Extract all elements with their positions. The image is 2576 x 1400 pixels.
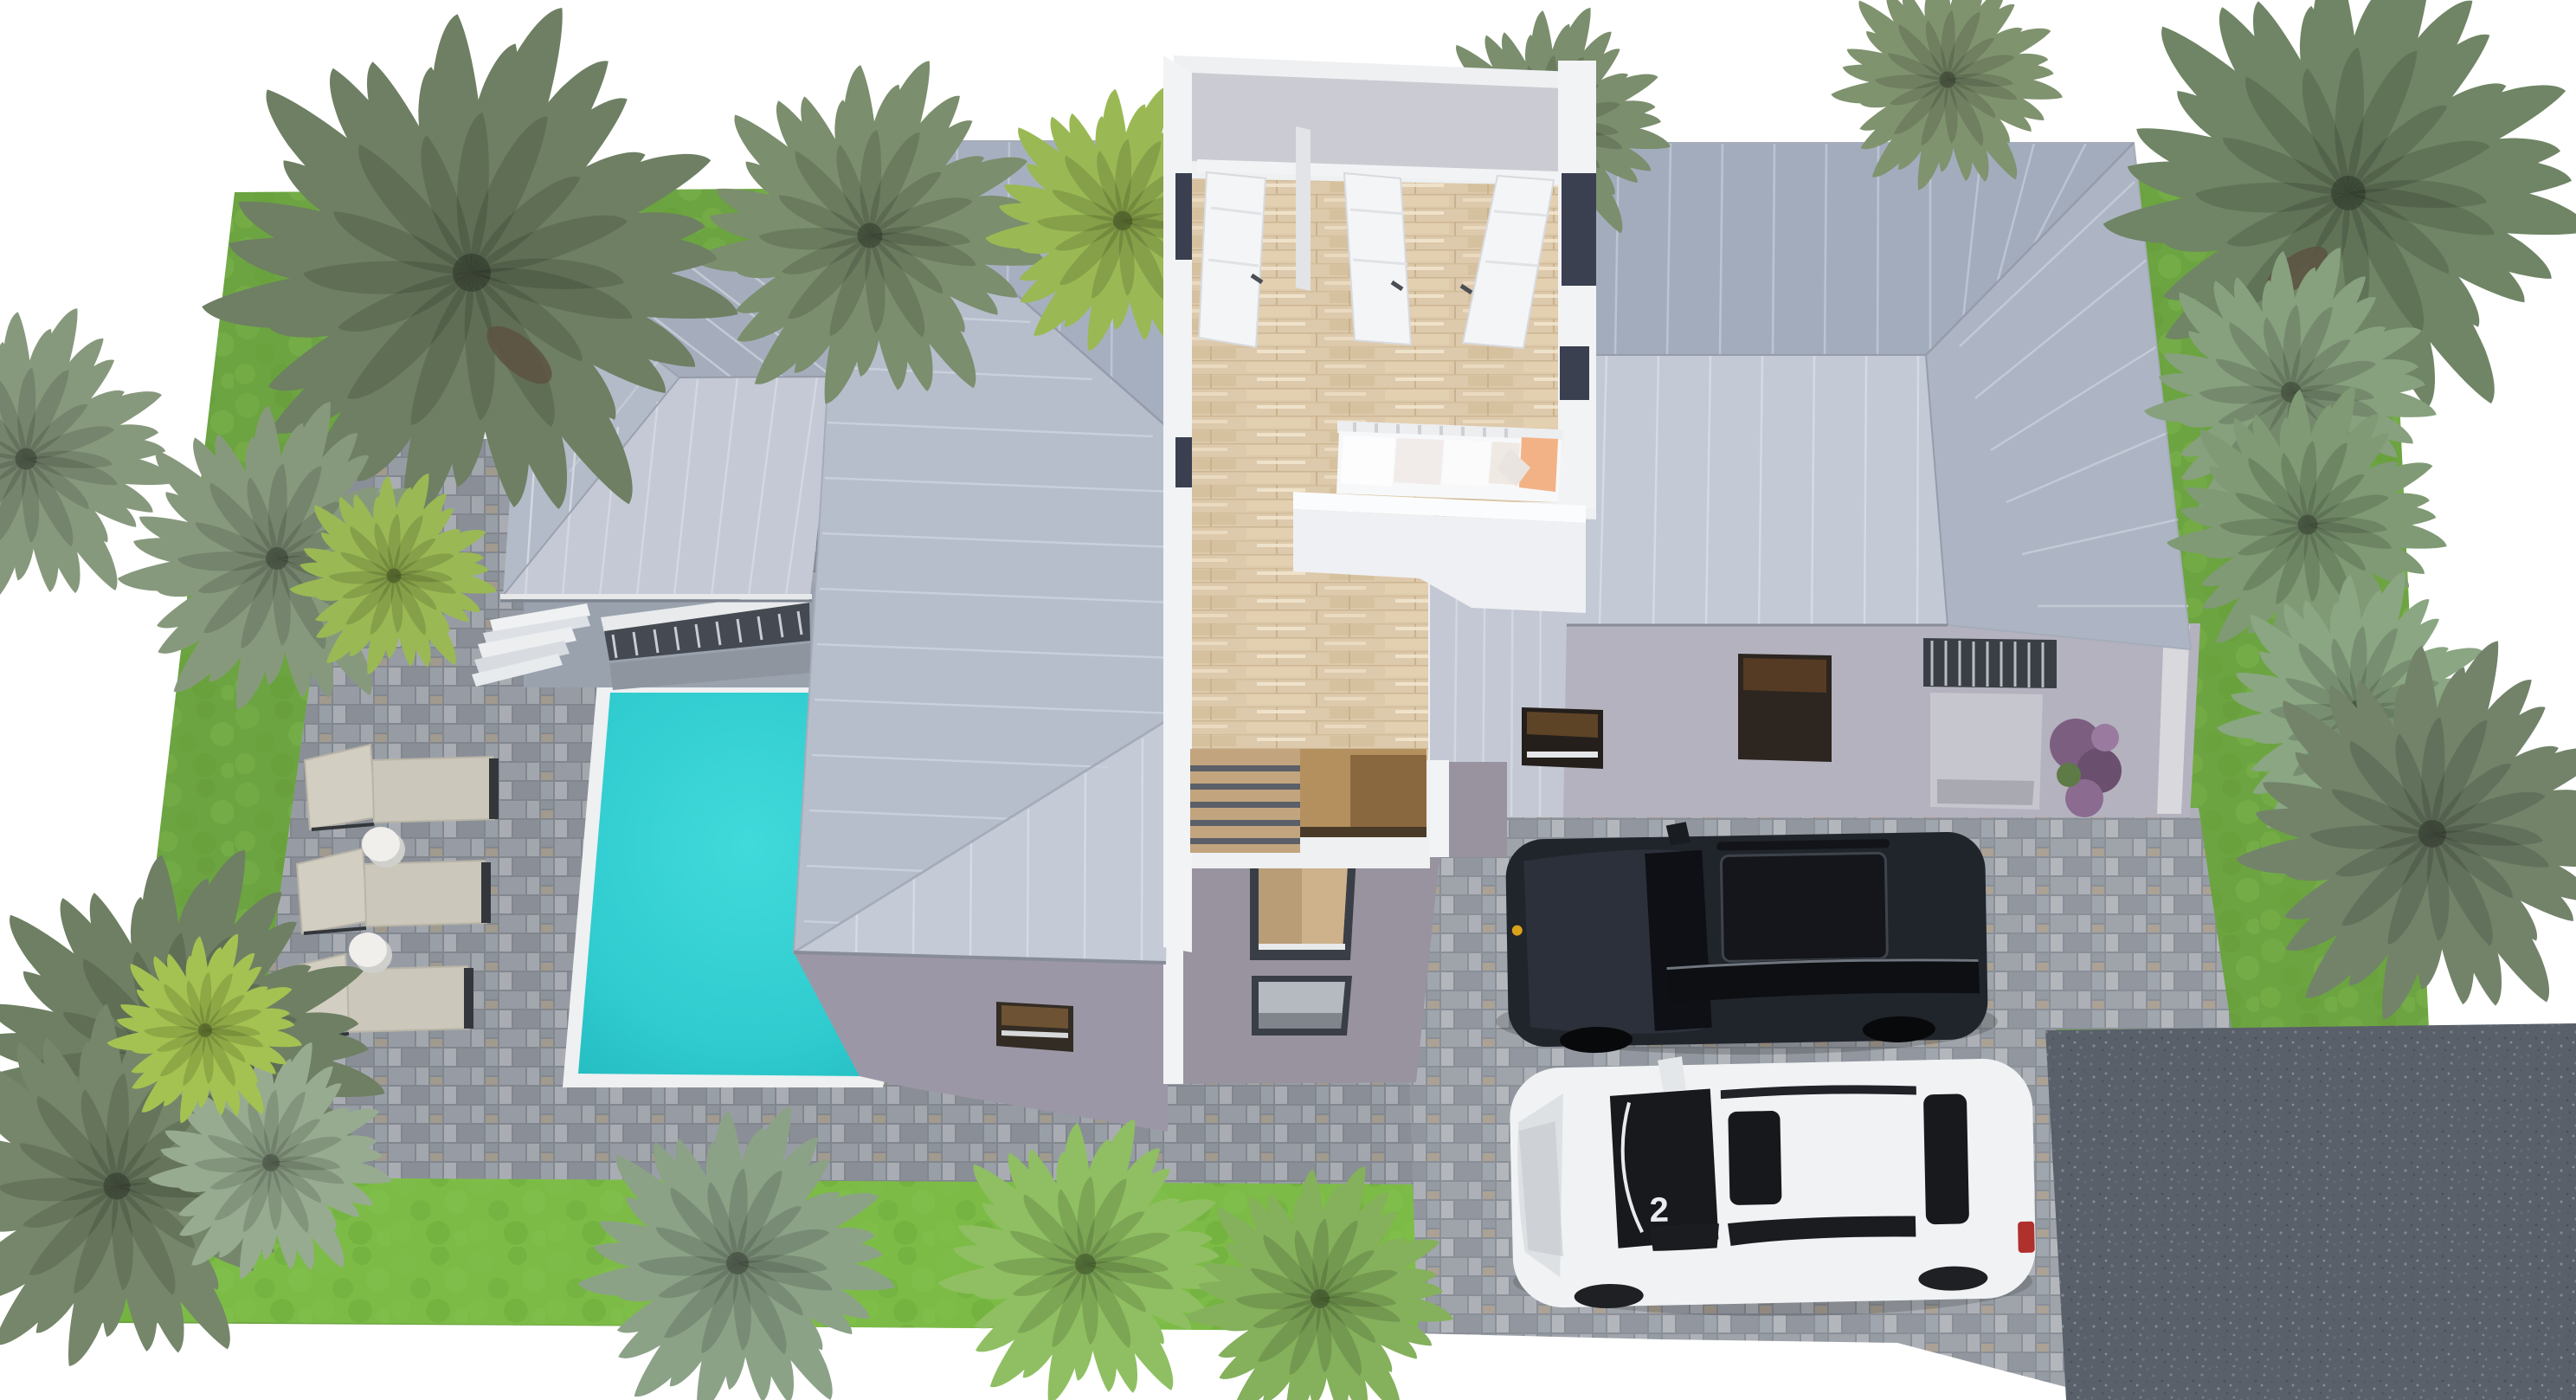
svg-text:2: 2 xyxy=(1649,1191,1669,1229)
